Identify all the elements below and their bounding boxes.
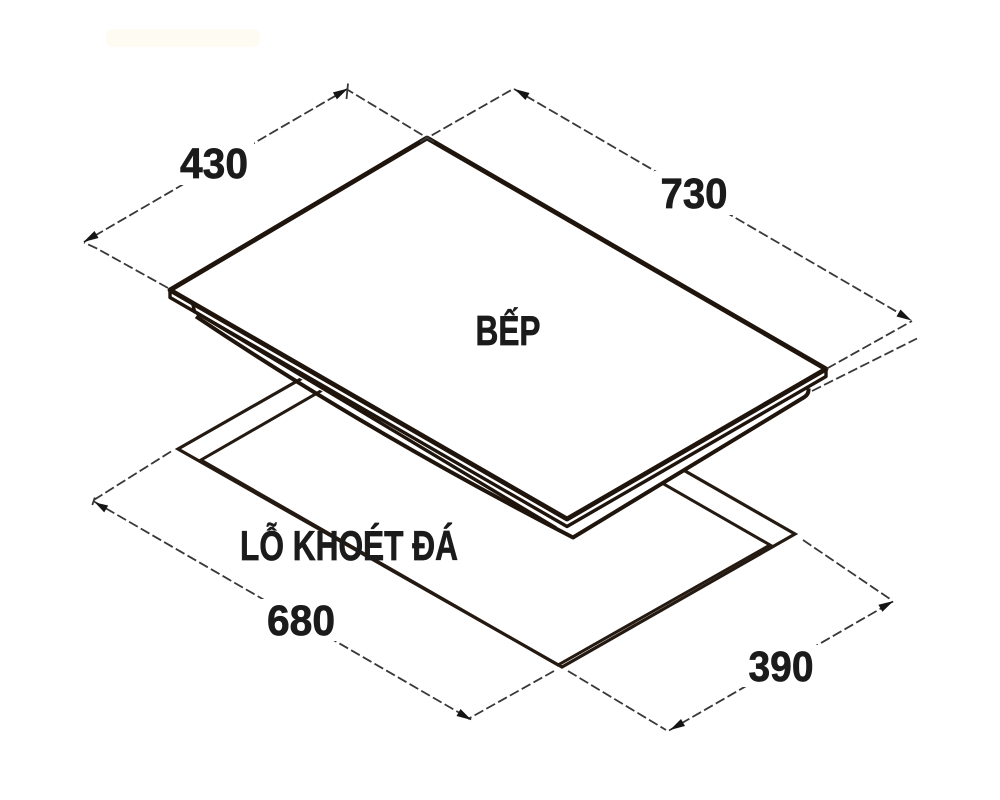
svg-text:430: 430 <box>180 141 248 188</box>
svg-text:730: 730 <box>661 171 728 218</box>
svg-text:LỖ KHOÉT ĐÁ: LỖ KHOÉT ĐÁ <box>240 522 458 569</box>
svg-text:390: 390 <box>749 644 814 691</box>
svg-text:BẾP: BẾP <box>476 307 541 354</box>
svg-text:680: 680 <box>267 598 335 645</box>
